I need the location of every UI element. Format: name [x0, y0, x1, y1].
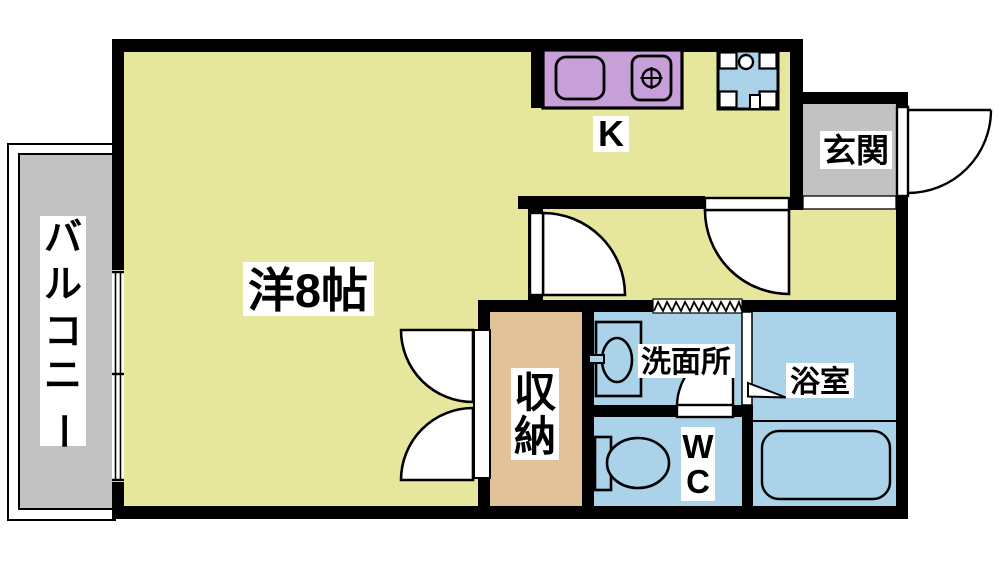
- kitchen-fixtures: [543, 50, 778, 109]
- balcony-label-dash: ー: [41, 412, 83, 450]
- kitchen-label: K: [598, 113, 624, 154]
- wall-left-upper: [112, 39, 124, 271]
- toilet-fixture: [595, 437, 669, 490]
- kitchen-hall-door-leaf: [705, 198, 789, 210]
- table-seat-icon: [760, 53, 777, 69]
- main-room-label: 洋8帖: [248, 264, 368, 317]
- wall-entrance-top: [802, 92, 908, 104]
- wall-washroom-wc: [594, 405, 677, 417]
- washbasin: [589, 322, 641, 396]
- kitchen-sink-icon: [556, 57, 604, 99]
- wc-door-leaf: [677, 405, 733, 417]
- table-seat-icon: [720, 53, 737, 69]
- entrance-door-leaf: [897, 107, 908, 196]
- toilet-bowl-icon: [607, 438, 669, 488]
- main-room-door-leaf: [530, 213, 543, 295]
- wall-bottom: [112, 506, 908, 519]
- wall-right: [896, 196, 908, 509]
- entrance-label: 玄関: [823, 132, 889, 169]
- window-opening: [112, 270, 124, 482]
- wall-storage-right: [582, 312, 594, 506]
- entrance-door-arc: [908, 110, 991, 193]
- wall-hall-top: [518, 196, 705, 209]
- wall-entrance-right-stub: [896, 92, 908, 108]
- bathtub: [752, 421, 896, 499]
- wall-kitchen-right: [790, 39, 803, 210]
- wall-wc-bathroom: [742, 405, 753, 506]
- wc-label: WC: [682, 428, 714, 500]
- entrance-door: [897, 107, 991, 196]
- table-seat-icon: [760, 92, 777, 108]
- bathroom-label: 浴室: [790, 365, 850, 399]
- washbasin-bowl-icon: [602, 338, 632, 382]
- accordion-door-washroom: [653, 299, 742, 313]
- entrance-step: [803, 196, 896, 209]
- floor-plan-drawing: 洋8帖 K 玄関 バルコニ ー 収納 洗面所 浴室 WC: [0, 0, 1000, 562]
- table-seat-icon: [720, 92, 737, 108]
- storage-label: 収納: [514, 369, 556, 460]
- balcony-window: [112, 270, 124, 482]
- table-faucet-icon: [739, 55, 753, 69]
- closet-door-frame: [474, 330, 490, 478]
- kitchen-floor: [124, 52, 791, 197]
- table-notch: [750, 95, 760, 109]
- washroom-label: 洗面所: [641, 346, 731, 379]
- wall-top: [112, 39, 803, 52]
- washbasin-faucet-icon: [589, 355, 604, 363]
- floor-plan: 洋8帖 K 玄関 バルコニ ー 収納 洗面所 浴室 WC: [0, 0, 1000, 562]
- bathtub-icon: [762, 431, 890, 499]
